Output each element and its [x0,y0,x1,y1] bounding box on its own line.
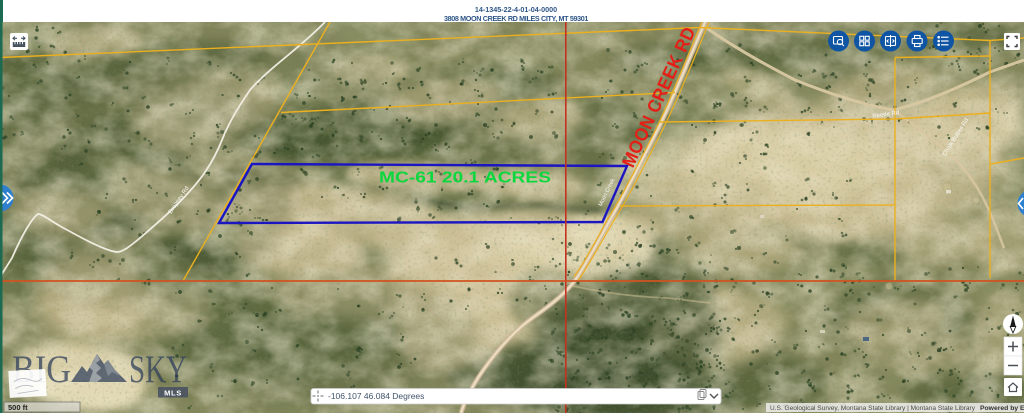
svg-text:MLS: MLS [164,389,182,398]
svg-text:500 ft: 500 ft [8,403,28,412]
svg-text:-106.107 46.084 Degrees: -106.107 46.084 Degrees [328,391,424,401]
svg-text:U.S. Geological Survey, Montan: U.S. Geological Survey, Montana State Li… [770,405,976,412]
svg-text:Powered by Es: Powered by Es [980,405,1024,412]
svg-text:MC-61 20.1 ACRES: MC-61 20.1 ACRES [379,170,551,187]
svg-text:SKY: SKY [129,348,187,391]
